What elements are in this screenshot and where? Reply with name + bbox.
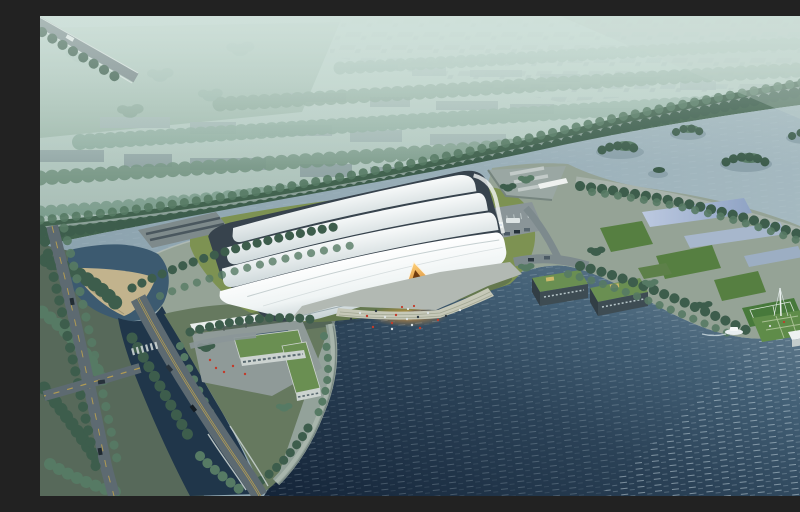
rendering-canvas (40, 16, 800, 496)
shuttle-bus (506, 218, 520, 223)
aerial-rendering (40, 16, 800, 496)
mast (780, 288, 781, 316)
